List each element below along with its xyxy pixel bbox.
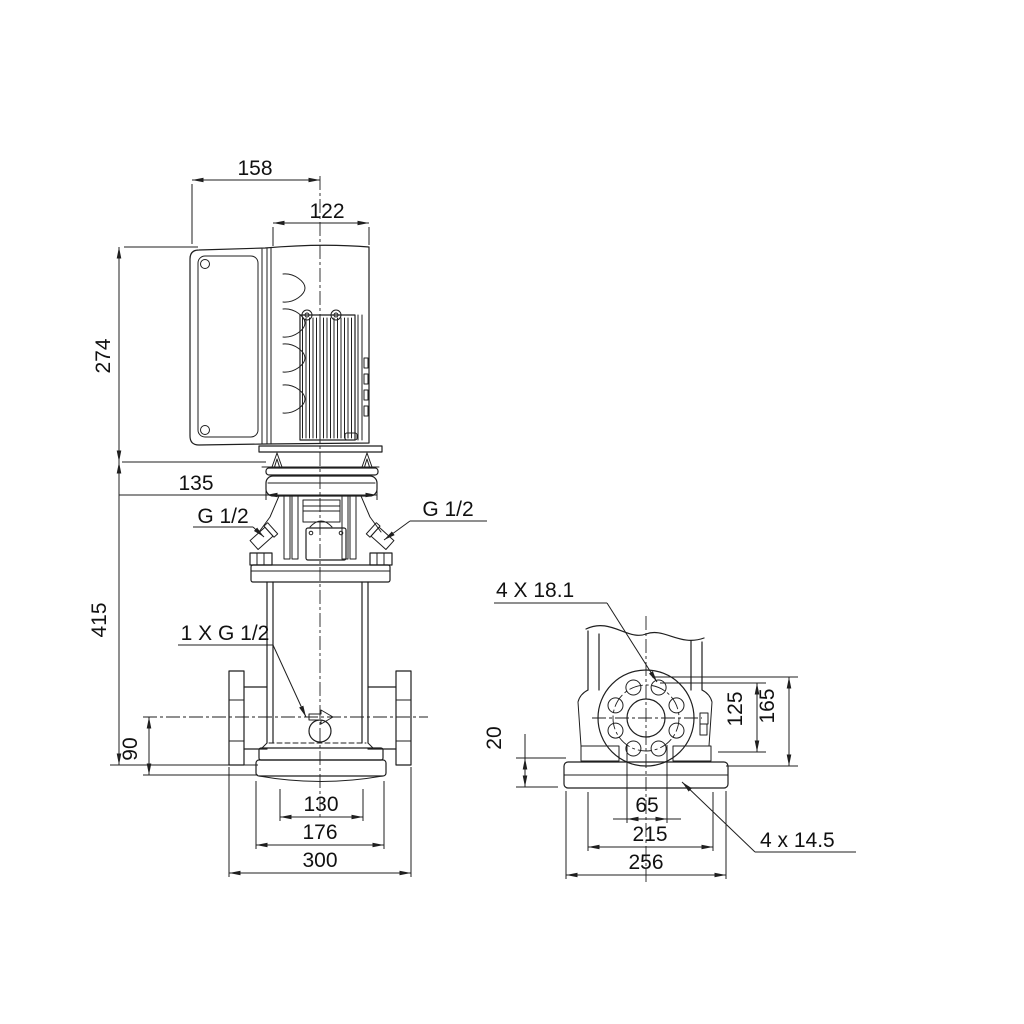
volute-left <box>578 690 588 746</box>
front-view: 158 122 274 135 415 90 130 176 300 G 1/2… <box>88 157 487 877</box>
motor-adapter <box>259 446 382 496</box>
flange-bolt-right <box>370 553 392 565</box>
leader-gauge-left <box>253 527 264 537</box>
pump-head <box>249 496 395 582</box>
spring-pin-right <box>362 453 372 467</box>
suction-flange-left <box>229 671 267 765</box>
side-tab <box>700 713 708 735</box>
dim-20-label: 20 <box>483 726 506 749</box>
flange-hole <box>651 741 666 756</box>
leader-base-holes <box>682 782 755 852</box>
flange-bolt-left <box>250 553 272 565</box>
control-box-screw-bottom <box>201 426 210 435</box>
heatsink-vent-slot <box>364 358 368 368</box>
head-casing-right <box>361 496 381 532</box>
motor-control-box <box>190 245 369 445</box>
motor-parting-lines <box>262 248 271 444</box>
gauge-left-label: G 1/2 <box>197 505 248 528</box>
head-casing-left <box>259 496 279 532</box>
leader-drain <box>273 645 306 717</box>
front-base <box>256 748 386 782</box>
gauge-right-label: G 1/2 <box>422 498 473 521</box>
dim-125-label: 125 <box>724 691 747 726</box>
staybolt <box>284 496 290 559</box>
dim-165-label: 165 <box>756 688 779 723</box>
control-box-clips <box>283 274 305 413</box>
base-holes-label: 4 x 14.5 <box>760 829 835 852</box>
control-box-screw-top <box>201 260 210 269</box>
heatsink-vent-slot <box>364 390 368 400</box>
volute-right <box>702 690 712 746</box>
dim-274-label: 274 <box>92 338 115 373</box>
dim-158-label: 158 <box>237 157 272 180</box>
control-box-inner-panel <box>198 256 258 437</box>
discharge-flange-right <box>368 671 411 765</box>
dimensional-drawing-page: 158 122 274 135 415 90 130 176 300 G 1/2… <box>0 0 1024 1024</box>
dim-256-label: 256 <box>628 851 663 874</box>
heatsink-vent-slot <box>364 374 368 384</box>
spring-pin-left <box>272 453 282 467</box>
leader-flange-holes <box>607 603 657 682</box>
break-line <box>586 626 704 641</box>
dim-135-label: 135 <box>178 472 213 495</box>
staybolt <box>350 496 356 559</box>
leader-gauge-right <box>384 521 410 540</box>
heatsink <box>300 310 368 440</box>
coupling <box>303 500 346 560</box>
flange-hole <box>608 723 623 738</box>
flange-holes-label: 4 X 18.1 <box>496 579 574 602</box>
side-view: 4 X 18.1 20 125 165 65 215 256 4 x 14.5 <box>483 579 856 882</box>
pump-technical-drawing: 158 122 274 135 415 90 130 176 300 G 1/2… <box>0 0 1024 1024</box>
gauge-plug-right <box>366 523 395 551</box>
dim-176-label: 176 <box>302 821 337 844</box>
staybolt <box>292 496 298 559</box>
dim-215-label: 215 <box>632 823 667 846</box>
dim-300-label: 300 <box>302 849 337 872</box>
dim-415-label: 415 <box>88 602 111 637</box>
head-flange <box>251 565 390 582</box>
side-column <box>578 626 712 761</box>
heatsink-vent-slot <box>364 406 368 416</box>
dim-90-label: 90 <box>119 737 142 760</box>
dim-130-label: 130 <box>303 793 338 816</box>
dim-122-label: 122 <box>309 200 344 223</box>
dim-65-label: 65 <box>635 794 658 817</box>
drain-label: 1 X G 1/2 <box>181 622 270 645</box>
